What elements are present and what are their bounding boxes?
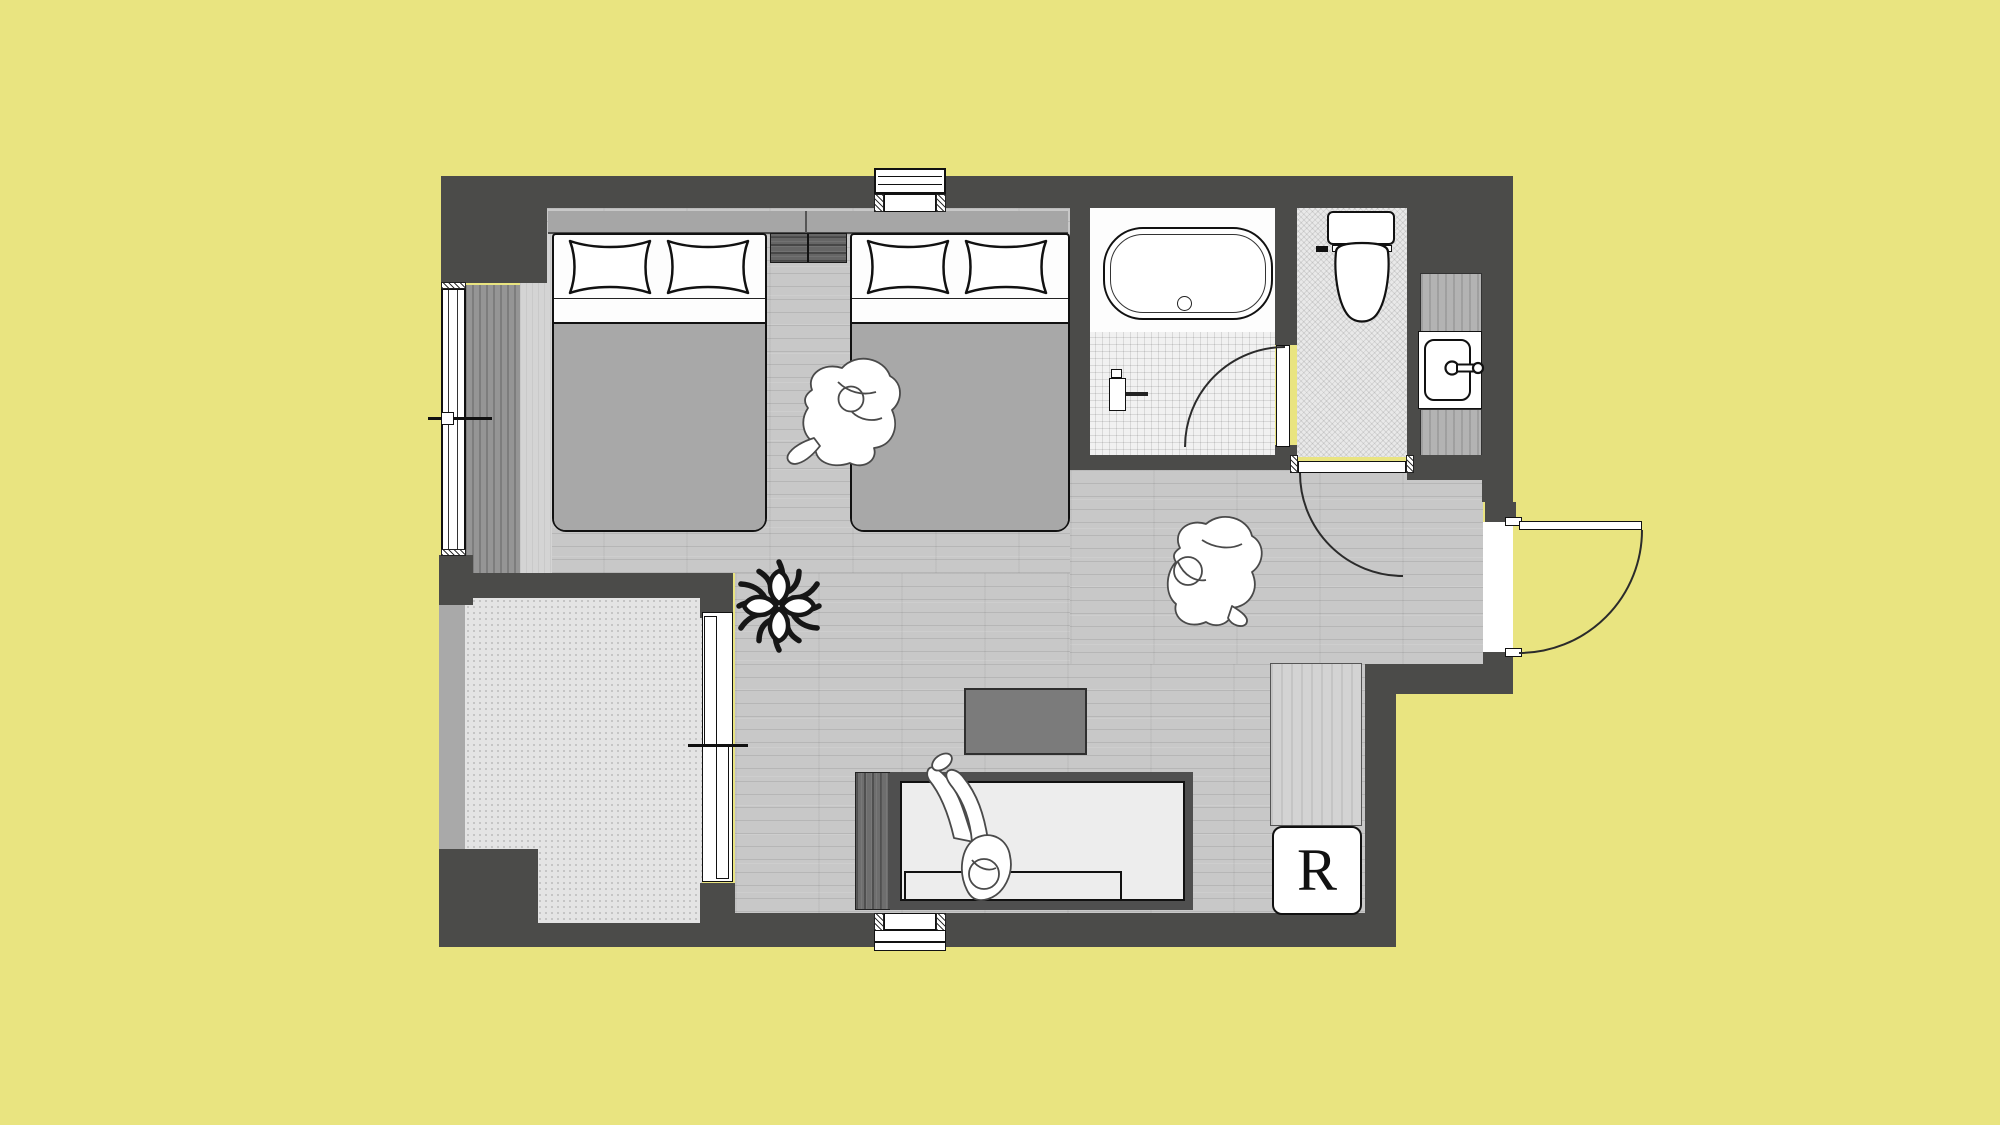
twin-bed-right	[850, 233, 1070, 532]
bed-duvet	[554, 322, 765, 530]
toilet-seat-hinge	[1332, 245, 1392, 252]
wall-step-horizontal	[1365, 664, 1513, 694]
entry-door-tab	[1505, 648, 1522, 657]
sliding-panel	[716, 744, 729, 879]
wall-bottom-left-block	[439, 849, 538, 947]
wall-top-left-block	[441, 176, 547, 283]
floor-plan: R	[0, 0, 2000, 1125]
wall-bottom-balcony	[538, 923, 702, 947]
sheet-fold-line	[852, 298, 1068, 299]
vent-jamb-hatch	[874, 913, 884, 931]
nightstand-divider	[807, 234, 809, 262]
vent-jamb-hatch	[936, 194, 946, 212]
window-sill-ledge	[465, 285, 520, 573]
shower-mixer-box	[1111, 369, 1122, 378]
window-jamb-hatch	[441, 549, 466, 556]
wall-vent-bottom-inner	[884, 913, 936, 930]
wall-bottom-main	[700, 913, 1396, 947]
wall-bath-bottom-left	[1070, 455, 1297, 470]
wall-vent-top-inner	[884, 194, 936, 212]
sliding-door-tick	[688, 744, 748, 747]
basin-counter-upper	[1420, 273, 1482, 333]
wall-vent-bottom-outer	[874, 942, 946, 951]
vent-jamb-hatch	[874, 194, 884, 212]
closet-counter	[1270, 663, 1362, 826]
door-jamb-hatch	[1290, 455, 1298, 473]
sofa-chaise-outline	[904, 871, 1122, 901]
entry-door-leaf	[1519, 521, 1642, 530]
headboard-panel	[548, 211, 1068, 234]
wall-bath-left	[1070, 208, 1090, 470]
wall-balcony-top	[473, 573, 702, 598]
bedside-floor-strip	[520, 233, 552, 573]
wall-vent-bottom-bar	[874, 930, 946, 942]
wall-bath-bottom-right	[1407, 455, 1482, 480]
window-jamb-hatch	[441, 282, 466, 289]
balcony-door-jamb-bottom	[700, 883, 735, 947]
balcony-rail	[439, 605, 465, 849]
entry-opening	[1483, 522, 1513, 652]
wall-window-divider-block	[439, 555, 473, 605]
low-table	[964, 688, 1087, 755]
entry-door-arc	[1519, 530, 1642, 653]
refrigerator-label: R	[1297, 836, 1337, 905]
balcony-sliding-door	[702, 612, 733, 882]
wall-step-vertical	[1365, 694, 1396, 947]
sofa-side-panel	[855, 772, 891, 910]
vent-jamb-hatch	[936, 913, 946, 931]
toilet-flush-handle	[1316, 246, 1328, 252]
shower-mixer	[1109, 378, 1126, 411]
refrigerator-box: R	[1272, 826, 1362, 915]
wall-top-right-block	[1418, 176, 1513, 273]
sliding-panel	[704, 616, 717, 747]
wall-bath-divider-upper	[1275, 208, 1297, 345]
toilet-door-leaf	[1298, 461, 1406, 473]
door-jamb-hatch	[1406, 455, 1414, 473]
shower-mixer-spout	[1126, 392, 1148, 396]
wall-vent-top-bar	[878, 176, 942, 185]
wall-right-upper	[1482, 273, 1513, 502]
bathtub	[1103, 227, 1273, 320]
window-mullion-box	[441, 412, 454, 425]
washbasin-bowl	[1424, 339, 1471, 401]
entry-floor	[1070, 470, 1483, 664]
headboard-divider	[805, 211, 807, 234]
toilet-tank	[1327, 211, 1395, 245]
bathroom-door-leaf	[1276, 345, 1290, 447]
window-frame-line	[457, 290, 458, 554]
page: { "title": "Hotel twin room floor plan",…	[0, 0, 2000, 1125]
basin-counter-lower	[1420, 409, 1482, 457]
nightstand	[770, 233, 847, 263]
bed-duvet	[852, 322, 1068, 530]
window-mullion-tick	[428, 417, 492, 420]
wall-top	[547, 176, 1418, 208]
sheet-fold-line	[554, 298, 765, 299]
bathtub-drain	[1177, 296, 1192, 311]
twin-bed-left	[552, 233, 767, 532]
